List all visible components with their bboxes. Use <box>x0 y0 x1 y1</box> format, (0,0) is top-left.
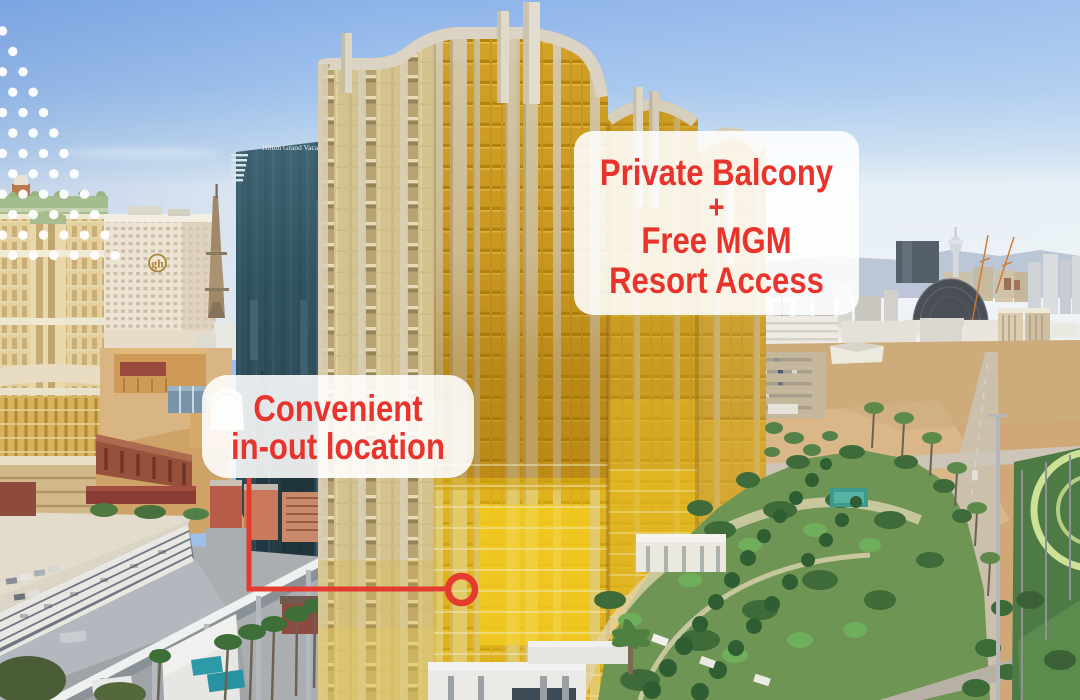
svg-text:Hilton Grand Vaca: Hilton Grand Vaca <box>262 143 319 152</box>
svg-text:gh: gh <box>151 257 164 271</box>
